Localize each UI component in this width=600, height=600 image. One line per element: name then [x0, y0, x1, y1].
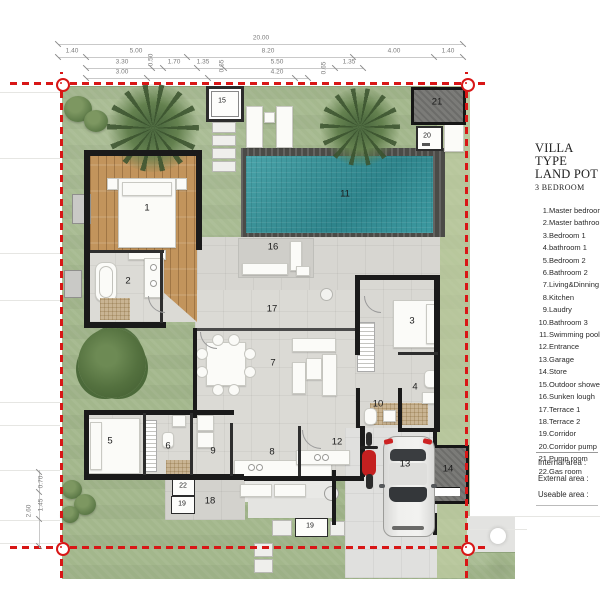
- extension-line: [0, 158, 60, 159]
- legend-item-number: 9.: [535, 304, 549, 316]
- dimension-label: 1.35: [197, 59, 210, 66]
- wall: [398, 428, 438, 432]
- lounge-bench: [242, 263, 288, 275]
- room-label-12: 12: [332, 437, 343, 448]
- dining-chair: [244, 348, 256, 360]
- kitchen-sink: [248, 464, 255, 471]
- palm-tree: [320, 88, 400, 166]
- legend-item-4: 4.bathroom 1: [535, 242, 600, 254]
- legend-item-13: 13.Garage: [535, 354, 600, 366]
- pump-mark: [422, 143, 430, 146]
- lounge-table: [296, 266, 310, 276]
- legend-item-label: Master bedroom: [549, 206, 600, 215]
- room-label-21: 21: [432, 97, 443, 108]
- coffee-table: [306, 358, 322, 380]
- dim-line: [86, 78, 308, 79]
- glass-wall: [197, 328, 360, 331]
- legend-divider: [536, 505, 598, 506]
- legend-item-number: 7.: [535, 279, 549, 291]
- dimension-label: 1.35: [343, 59, 356, 66]
- dimension-label: 1.40: [66, 48, 79, 55]
- stepping-stone: [212, 135, 236, 146]
- dimension-label: 3.00: [116, 69, 129, 76]
- toilet: [364, 408, 377, 425]
- boundary-right: [465, 72, 468, 578]
- palm-tree: [107, 84, 199, 172]
- dining-chair: [196, 348, 208, 360]
- legend-item-1: 1.Master bedroom: [535, 205, 600, 217]
- interior-wall: [143, 413, 146, 475]
- sink-bowl: [150, 280, 157, 287]
- dimension-label: 1.45: [38, 499, 45, 512]
- legend-item-8: 8.Kitchen: [535, 292, 600, 304]
- ac-unit: [64, 270, 82, 298]
- boundary-bottom: [10, 546, 488, 549]
- nightstand: [176, 178, 187, 190]
- room-label-22: 22: [179, 483, 187, 490]
- extension-line: [0, 92, 60, 93]
- wall: [84, 474, 244, 480]
- wall: [356, 388, 360, 428]
- dimension-label: 5.00: [130, 48, 143, 55]
- dimension-label: 0.65: [321, 62, 328, 75]
- motorcycle-rear-wheel: [366, 474, 373, 489]
- boundary-marker: [461, 542, 475, 556]
- boundary-marker: [461, 78, 475, 92]
- legend-item-number: 11.: [535, 329, 549, 341]
- sun-lounger: [276, 106, 293, 148]
- washer: [197, 415, 214, 431]
- useable-area-label: Useable area :: [538, 490, 589, 499]
- room-label-2: 2: [125, 276, 130, 287]
- dimension-label: 1.40: [442, 48, 455, 55]
- legend-item-label: bathroom 1: [549, 243, 587, 252]
- car-grille: [392, 526, 424, 530]
- dining-chair: [196, 366, 208, 378]
- room-label-16: 16: [268, 242, 279, 253]
- legend-item-number: 10.: [535, 317, 549, 329]
- legend-item-number: 14.: [535, 366, 549, 378]
- dimension-label: 5.50: [271, 59, 284, 66]
- wall: [355, 275, 360, 355]
- wall: [332, 470, 336, 525]
- legend-item-number: 1.: [535, 205, 549, 217]
- gate-ornament: [490, 528, 506, 544]
- room-label-20: 20: [423, 133, 431, 140]
- room-label-19: 19: [306, 523, 314, 530]
- boundary-marker: [56, 78, 70, 92]
- bath-sink: [383, 410, 396, 422]
- room-label-15: 15: [218, 98, 226, 105]
- dimension-label: 20.00: [253, 35, 269, 42]
- wall: [244, 476, 364, 481]
- legend-item-number: 6.: [535, 267, 549, 279]
- legend-item-number: 16.: [535, 391, 549, 403]
- stepping-stone: [212, 161, 236, 172]
- legend-divider: [536, 452, 598, 453]
- dimension-label: 1.70: [168, 59, 181, 66]
- stepping-stone: [272, 520, 292, 536]
- legend-item-label: Garage: [549, 355, 574, 364]
- boundary-marker: [56, 542, 70, 556]
- stepping-stone: [254, 559, 273, 573]
- car-mirror: [431, 484, 437, 488]
- dining-chair: [228, 384, 240, 396]
- legend-item-number: 2.: [535, 217, 549, 229]
- extension-line: [0, 425, 60, 426]
- legend-title-2: LAND POT: [535, 168, 600, 181]
- wall: [84, 322, 166, 328]
- legend-item-number: 12.: [535, 341, 549, 353]
- burner: [314, 454, 321, 461]
- boundary-top: [10, 82, 488, 85]
- legend-item-label: Sunken lough: [549, 392, 595, 401]
- nightstand: [107, 178, 118, 190]
- legend-item-label: Kitchen: [549, 293, 574, 302]
- extension-line: [0, 402, 60, 403]
- stepping-stone: [212, 148, 236, 159]
- legend-item-label: Bathroom 2: [549, 268, 588, 277]
- internal-area-label: Internal area :: [538, 458, 586, 467]
- outdoor-washer: [274, 484, 306, 497]
- legend-item-3: 3.Bedroom 1: [535, 230, 600, 242]
- wall: [196, 150, 202, 250]
- terrace-table: [320, 288, 333, 301]
- legend-item-label: Store: [549, 367, 567, 376]
- legend-item-label: Swimming pool: [549, 330, 600, 339]
- legend-item-number: 4.: [535, 242, 549, 254]
- room-label-3: 3: [409, 316, 414, 327]
- interior-wall: [398, 352, 438, 355]
- room-label-4: 4: [412, 382, 417, 393]
- room-label-8: 8: [269, 447, 274, 458]
- apron-line-1: [467, 516, 600, 517]
- legend-item-number: 18.: [535, 416, 549, 428]
- legend-item-number: 13.: [535, 354, 549, 366]
- legend-panel: VILLA TYPE LAND POT 3 BEDROOM 1.Master b…: [535, 142, 600, 478]
- sink-bowl: [150, 264, 157, 271]
- sofa: [292, 338, 336, 352]
- car-windshield: [389, 487, 427, 502]
- boundary-left: [60, 72, 63, 578]
- dimension-label: 0.70: [38, 476, 45, 489]
- legend-item-label: Terrace 1: [549, 405, 580, 414]
- extension-line: [0, 300, 60, 301]
- room-label-7: 7: [270, 358, 275, 369]
- legend-item-label: Laudry: [549, 305, 572, 314]
- legend-item-5: 5.Bedroom 2: [535, 255, 600, 267]
- wall: [84, 150, 202, 156]
- legend-item-number: 17.: [535, 404, 549, 416]
- legend-item-label: Bathroom 3: [549, 318, 588, 327]
- walkway: [248, 498, 332, 518]
- dimension-label: 8.20: [262, 48, 275, 55]
- extension-line: [0, 253, 60, 254]
- leafy-tree: [78, 328, 146, 398]
- dining-chair: [212, 384, 224, 396]
- wall: [355, 275, 440, 280]
- legend-item-label: Living&Dinning: [549, 280, 599, 289]
- dining-chair: [244, 366, 256, 378]
- dimension-label: 4.00: [388, 48, 401, 55]
- room-label-18: 18: [205, 496, 216, 507]
- sun-lounger: [246, 106, 263, 148]
- legend-item-number: 15.: [535, 379, 549, 391]
- legend-item-number: 5.: [535, 255, 549, 267]
- legend-item-number: 19.: [535, 428, 549, 440]
- wood-corridor-cut: [163, 292, 197, 322]
- legend-item-2: 2.Master bathroom: [535, 217, 600, 229]
- wall: [84, 410, 89, 480]
- legend-item-6: 6.Bathroom 2: [535, 267, 600, 279]
- motorcycle-body: [362, 450, 376, 476]
- stepping-stone: [212, 122, 236, 133]
- room-label-9: 9: [210, 446, 215, 457]
- wall: [84, 150, 90, 328]
- legend-item-label: Corridor: [549, 429, 576, 438]
- room-label-5: 5: [107, 436, 112, 447]
- legend-item-label: Outdoor shower: [549, 380, 600, 389]
- legend-item-14: 14.Store: [535, 366, 600, 378]
- master-bed-pillows: [122, 182, 172, 196]
- legend-item-label: Corridor pump: [549, 442, 597, 451]
- bush: [84, 110, 108, 132]
- room-label-17: 17: [267, 304, 278, 315]
- motorcycle-front-wheel: [366, 432, 372, 446]
- legend-item-label: Entrance: [549, 342, 579, 351]
- legend-title-1: VILLA TYPE: [535, 142, 600, 168]
- legend-item-label: Terrace 2: [549, 417, 580, 426]
- store-room-label-strip: [435, 487, 460, 496]
- sofa: [322, 354, 337, 396]
- interior-wall: [298, 426, 301, 476]
- legend-item-19: 19.Corridor: [535, 428, 600, 440]
- legend-item-number: 8.: [535, 292, 549, 304]
- room-label-10: 10: [373, 399, 384, 410]
- wall: [84, 410, 234, 415]
- extension-line: [0, 520, 60, 521]
- shower-floor: [100, 298, 130, 320]
- lounger-table: [264, 112, 275, 123]
- dimension-label: 2.60: [26, 505, 33, 518]
- bush: [61, 506, 79, 523]
- legend-item-17: 17.Terrace 1: [535, 404, 600, 416]
- bathtub-inner: [99, 266, 113, 298]
- room-label-6: 6: [165, 441, 170, 452]
- legend-item-12: 12.Entrance: [535, 341, 600, 353]
- dim-line: [58, 44, 463, 45]
- legend-item-18: 18.Terrace 2: [535, 416, 600, 428]
- room-label-19: 19: [178, 501, 186, 508]
- legend-item-16: 16.Sunken lough: [535, 391, 600, 403]
- legend-item-11: 11.Swimming pool: [535, 329, 600, 341]
- bedroom2-pillows: [90, 422, 102, 470]
- external-area-label: External area :: [538, 474, 589, 483]
- wall: [193, 328, 197, 418]
- interior-wall: [90, 250, 164, 253]
- legend-item-number: 3.: [535, 230, 549, 242]
- car-mirror: [379, 484, 385, 488]
- legend-item-label: Bedroom 2: [549, 256, 586, 265]
- dining-table: [206, 342, 246, 386]
- interior-wall: [230, 423, 233, 476]
- legend-item-7: 7.Living&Dinning: [535, 279, 600, 291]
- interior-wall: [190, 413, 193, 475]
- room-label-1: 1: [144, 203, 149, 214]
- burner: [322, 454, 329, 461]
- dining-chair: [228, 334, 240, 346]
- bath-sink: [172, 415, 186, 427]
- apron-grass-corner: [467, 552, 515, 579]
- legend-item-15: 15.Outdoor shower: [535, 379, 600, 391]
- armchair: [292, 362, 306, 394]
- extension-line: [0, 470, 60, 471]
- room-label-13: 13: [400, 459, 411, 470]
- legend-item-list: 1.Master bedroom2.Master bathroom3.Bedro…: [535, 205, 600, 478]
- legend-item-label: Bedroom 1: [549, 231, 586, 240]
- room-label-11: 11: [340, 189, 350, 200]
- legend-title-3: 3 BEDROOM: [535, 183, 600, 192]
- legend-item-9: 9.Laudry: [535, 304, 600, 316]
- outdoor-washer: [240, 484, 272, 497]
- room-label-14: 14: [443, 464, 454, 475]
- floor-plan-canvas: 20.001.405.008.204.001.403.300.501.701.3…: [0, 0, 600, 600]
- dimension-label: 3.30: [116, 59, 129, 66]
- dimension-label: 4.20: [271, 69, 284, 76]
- legend-item-label: Master bathroom: [549, 218, 600, 227]
- extension-line: [0, 543, 60, 544]
- motorcycle-handlebar: [360, 446, 378, 449]
- wall: [398, 388, 402, 428]
- legend-item-10: 10.Bathroom 3: [535, 317, 600, 329]
- kitchen-sink: [256, 464, 263, 471]
